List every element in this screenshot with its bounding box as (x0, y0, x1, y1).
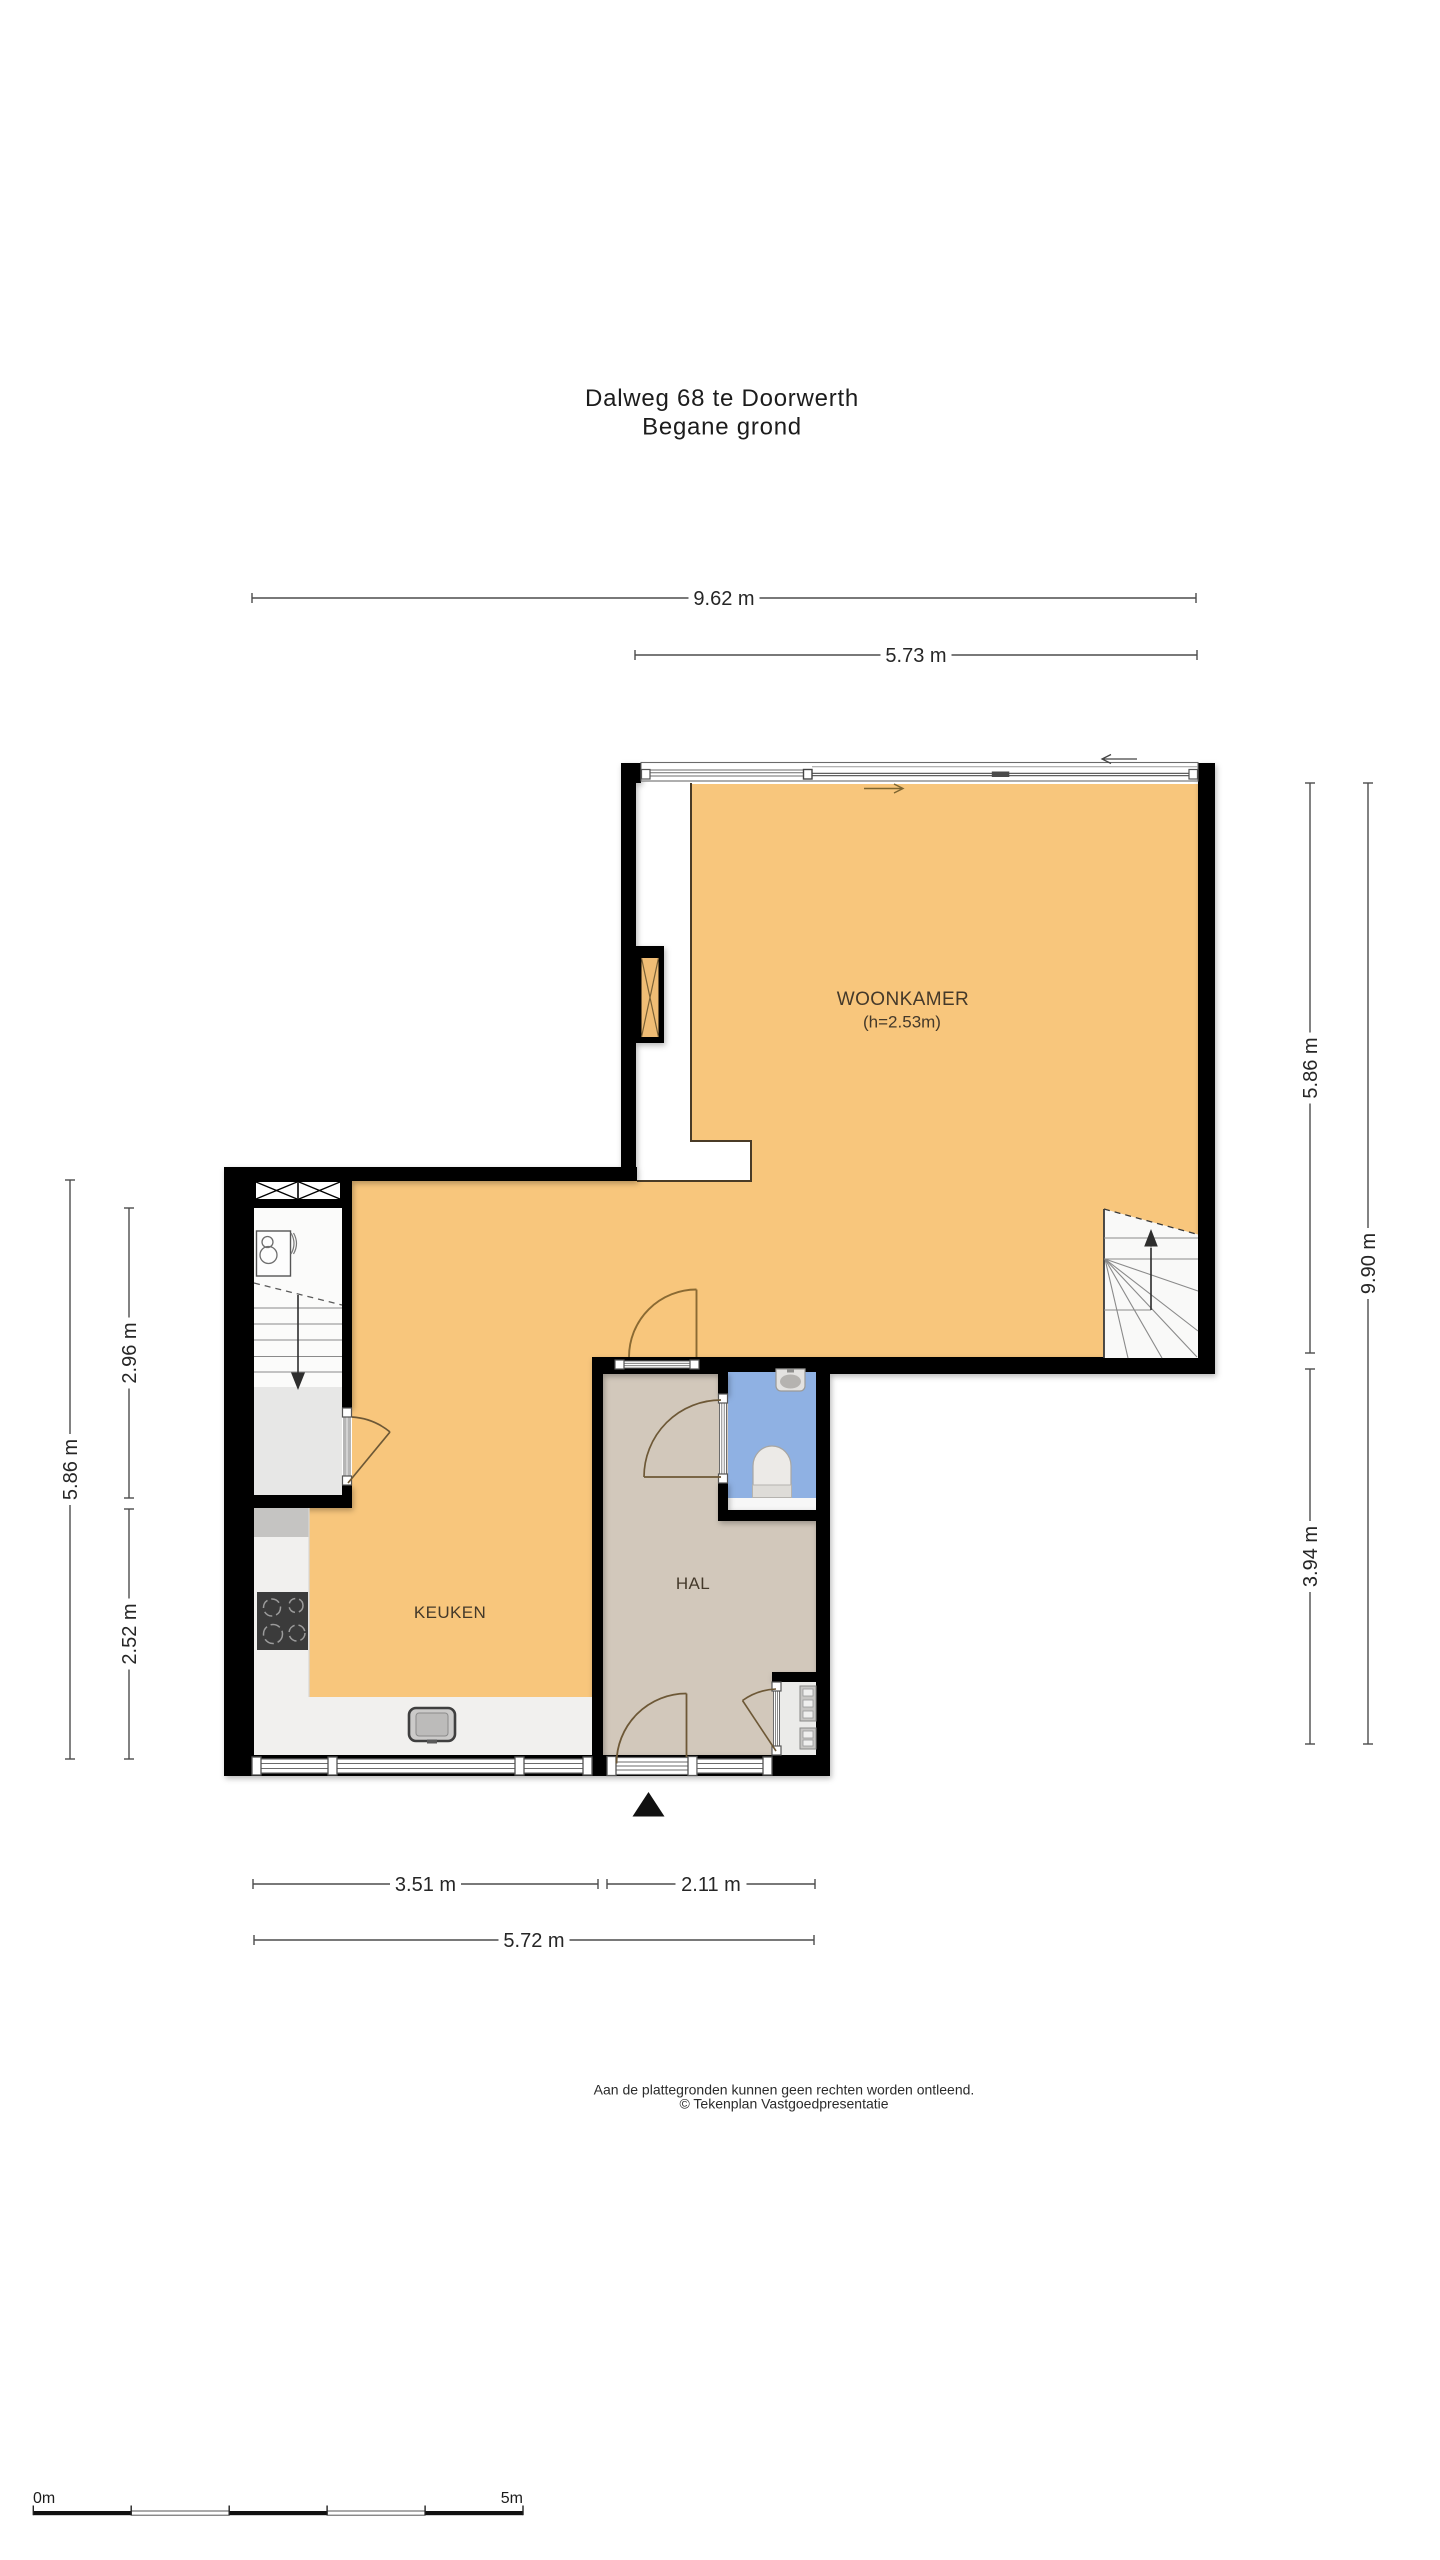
svg-text:2.11 m: 2.11 m (681, 1874, 741, 1896)
svg-text:5m: 5m (501, 2490, 523, 2507)
svg-text:5.72 m: 5.72 m (503, 1930, 564, 1952)
svg-text:3.51 m: 3.51 m (395, 1874, 456, 1896)
svg-text:5.86 m: 5.86 m (1300, 1037, 1322, 1098)
svg-text:Dalweg 68 te Doorwerth: Dalweg 68 te Doorwerth (585, 385, 859, 412)
svg-text:WOONKAMER: WOONKAMER (837, 989, 969, 1010)
svg-text:HAL: HAL (676, 1574, 710, 1593)
svg-text:9.62 m: 9.62 m (693, 588, 754, 610)
svg-text:9.90 m: 9.90 m (1358, 1233, 1380, 1294)
svg-text:2.52 m: 2.52 m (119, 1603, 141, 1664)
svg-text:2.96 m: 2.96 m (119, 1322, 141, 1383)
svg-text:3.94 m: 3.94 m (1300, 1526, 1322, 1587)
svg-text:5.73 m: 5.73 m (885, 645, 946, 667)
svg-text:5.86 m: 5.86 m (60, 1439, 82, 1500)
svg-text:(h=2.53m): (h=2.53m) (863, 1013, 941, 1032)
svg-text:Begane grond: Begane grond (642, 414, 802, 441)
svg-text:0m: 0m (33, 2490, 55, 2507)
svg-text:© Tekenplan Vastgoedpresentati: © Tekenplan Vastgoedpresentatie (679, 2096, 888, 2112)
svg-text:KEUKEN: KEUKEN (414, 1603, 486, 1622)
